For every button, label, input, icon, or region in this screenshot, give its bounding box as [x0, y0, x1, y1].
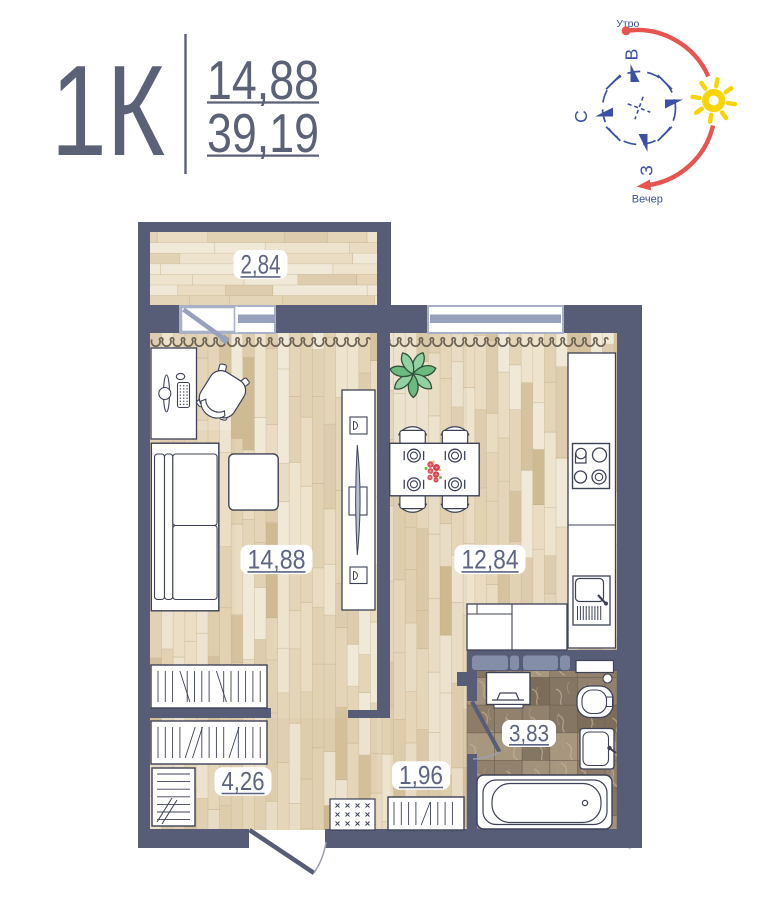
- svg-text:В: В: [622, 49, 642, 61]
- svg-text:Вечер: Вечер: [632, 193, 663, 205]
- svg-text:3,83: 3,83: [509, 720, 549, 747]
- svg-text:С: С: [571, 110, 591, 123]
- svg-text:14,88: 14,88: [248, 544, 306, 574]
- svg-text:1,96: 1,96: [399, 760, 443, 790]
- svg-text:З: З: [637, 165, 657, 176]
- svg-text:1К: 1К: [51, 39, 165, 183]
- svg-text:2,84: 2,84: [241, 249, 281, 279]
- svg-text:4,26: 4,26: [222, 766, 265, 796]
- svg-text:12,84: 12,84: [462, 544, 519, 574]
